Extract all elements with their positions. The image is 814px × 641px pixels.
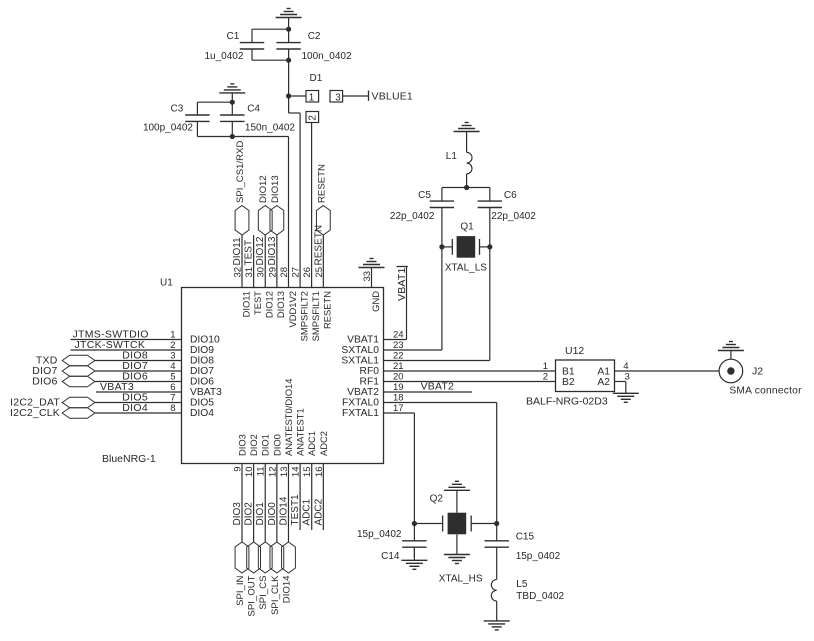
svg-text:2: 2	[170, 340, 175, 351]
svg-text:26: 26	[302, 267, 313, 278]
svg-text:SMA connector: SMA connector	[729, 386, 802, 397]
svg-text:DIO11: DIO11	[240, 291, 251, 317]
svg-text:15p_0402: 15p_0402	[516, 551, 561, 562]
svg-text:21: 21	[393, 361, 404, 372]
svg-text:DIO6: DIO6	[190, 377, 214, 388]
svg-text:DIO11: DIO11	[232, 237, 243, 266]
svg-text:DIO6: DIO6	[32, 375, 57, 387]
svg-text:SXTAL1: SXTAL1	[341, 356, 379, 367]
svg-text:TEST1: TEST1	[290, 494, 301, 526]
svg-text:VBAT2: VBAT2	[421, 380, 454, 392]
svg-text:SMPSFILT1: SMPSFILT1	[310, 291, 321, 341]
svg-text:DIO10: DIO10	[190, 335, 220, 346]
svg-text:ANATEST0/DIO14: ANATEST0/DIO14	[283, 379, 294, 456]
svg-text:VBAT1: VBAT1	[396, 268, 408, 301]
svg-text:Q2: Q2	[430, 494, 444, 505]
svg-text:DIO4: DIO4	[122, 402, 148, 414]
svg-text:D1: D1	[310, 73, 323, 84]
svg-text:4: 4	[170, 361, 175, 372]
svg-text:VDD1V2: VDD1V2	[287, 291, 298, 327]
svg-text:DIO14: DIO14	[278, 496, 289, 525]
svg-text:C1: C1	[227, 31, 240, 42]
svg-text:20: 20	[393, 372, 404, 383]
svg-text:28: 28	[279, 267, 290, 278]
svg-text:DIO0: DIO0	[267, 502, 278, 526]
svg-text:2: 2	[308, 115, 319, 120]
svg-text:C4: C4	[247, 103, 260, 114]
svg-text:27: 27	[291, 267, 302, 278]
svg-text:VBAT3: VBAT3	[190, 387, 222, 398]
svg-text:18: 18	[393, 393, 404, 404]
svg-text:A2: A2	[597, 377, 610, 388]
svg-text:1u_0402: 1u_0402	[204, 51, 243, 62]
svg-text:DIO2: DIO2	[244, 502, 255, 526]
svg-text:DIO14: DIO14	[281, 575, 292, 603]
svg-text:19: 19	[393, 382, 404, 393]
svg-text:SXTAL0: SXTAL0	[341, 345, 379, 356]
svg-text:VBAT1: VBAT1	[347, 335, 379, 346]
svg-text:FXTAL1: FXTAL1	[342, 408, 379, 419]
svg-text:8: 8	[170, 403, 175, 414]
svg-text:3: 3	[625, 372, 630, 383]
svg-text:RF0: RF0	[360, 366, 380, 377]
svg-text:DIO12: DIO12	[264, 291, 275, 318]
svg-text:TEST: TEST	[244, 240, 255, 266]
svg-text:100p_0402: 100p_0402	[143, 123, 193, 134]
svg-text:DIO1: DIO1	[260, 434, 271, 456]
svg-text:A1: A1	[597, 367, 610, 378]
svg-text:VBLUE1: VBLUE1	[372, 90, 413, 102]
svg-text:BlueNRG-1: BlueNRG-1	[102, 453, 156, 465]
svg-text:3: 3	[335, 92, 341, 103]
svg-text:J2: J2	[752, 366, 763, 378]
svg-text:DIO8: DIO8	[190, 356, 214, 367]
svg-text:4: 4	[623, 361, 628, 372]
svg-text:ADC2: ADC2	[313, 498, 324, 525]
svg-text:RESETN: RESETN	[313, 225, 324, 266]
svg-text:RESETN: RESETN	[322, 291, 333, 329]
svg-text:ANATEST1: ANATEST1	[295, 408, 306, 456]
svg-text:DIO13: DIO13	[270, 175, 281, 203]
svg-text:1: 1	[543, 361, 548, 372]
svg-text:VBAT2: VBAT2	[347, 387, 379, 398]
svg-text:L1: L1	[446, 151, 458, 162]
svg-text:U1: U1	[160, 278, 173, 289]
svg-text:5: 5	[170, 372, 175, 383]
svg-text:24: 24	[393, 330, 404, 341]
svg-text:C2: C2	[308, 31, 321, 42]
svg-text:22p_0402: 22p_0402	[491, 211, 536, 222]
svg-text:DIO12: DIO12	[258, 175, 269, 203]
svg-text:C3: C3	[171, 103, 184, 114]
svg-text:FXTAL0: FXTAL0	[342, 398, 379, 409]
svg-text:DIO13: DIO13	[267, 236, 278, 265]
svg-text:DIO4: DIO4	[190, 408, 214, 419]
svg-text:GND: GND	[370, 291, 381, 312]
svg-text:SPI_IN: SPI_IN	[235, 575, 246, 605]
svg-text:L5: L5	[516, 579, 528, 590]
svg-text:DIO7: DIO7	[190, 366, 214, 377]
svg-text:22p_0402: 22p_0402	[390, 211, 435, 222]
svg-text:DIO13: DIO13	[275, 291, 286, 318]
svg-text:C14: C14	[381, 551, 400, 562]
svg-text:RF1: RF1	[360, 377, 380, 388]
svg-text:TEST: TEST	[252, 291, 263, 315]
svg-text:XTAL_LS: XTAL_LS	[445, 263, 487, 274]
svg-text:BALF-NRG-02D3: BALF-NRG-02D3	[526, 396, 608, 408]
svg-text:ADC1: ADC1	[306, 431, 317, 456]
svg-text:23: 23	[393, 340, 404, 351]
svg-text:17: 17	[393, 403, 404, 414]
svg-text:DIO0: DIO0	[271, 434, 282, 456]
svg-text:6: 6	[170, 382, 175, 393]
svg-text:SPI_CS: SPI_CS	[258, 576, 269, 610]
svg-text:22: 22	[393, 351, 404, 362]
svg-text:U12: U12	[565, 345, 584, 357]
svg-text:ADC2: ADC2	[318, 431, 329, 456]
svg-text:I2C2_CLK: I2C2_CLK	[10, 407, 60, 419]
svg-text:XTAL_HS: XTAL_HS	[439, 574, 483, 585]
svg-text:SPI_CS1/RXD: SPI_CS1/RXD	[235, 141, 246, 203]
svg-text:ADC1: ADC1	[302, 498, 313, 525]
svg-text:C5: C5	[418, 190, 431, 201]
svg-text:DIO5: DIO5	[190, 398, 214, 409]
svg-text:15p_0402: 15p_0402	[357, 529, 402, 540]
svg-text:SMPSFILT2: SMPSFILT2	[298, 291, 309, 341]
svg-text:SPI_CLK: SPI_CLK	[270, 575, 281, 615]
svg-text:DIO9: DIO9	[190, 345, 214, 356]
svg-text:SPI_OUT: SPI_OUT	[247, 575, 258, 616]
svg-text:B2: B2	[562, 377, 575, 388]
svg-text:1: 1	[309, 92, 314, 103]
svg-text:RESETN: RESETN	[316, 164, 327, 203]
svg-text:C15: C15	[516, 531, 535, 542]
svg-text:3: 3	[170, 351, 175, 362]
svg-text:C6: C6	[504, 190, 517, 201]
svg-text:DIO2: DIO2	[248, 434, 259, 456]
svg-text:1: 1	[170, 330, 175, 341]
svg-text:DIO3: DIO3	[232, 502, 243, 526]
svg-text:150n_0402: 150n_0402	[245, 123, 295, 134]
svg-text:2: 2	[543, 371, 548, 382]
svg-text:B1: B1	[562, 367, 575, 378]
svg-text:DIO3: DIO3	[237, 434, 248, 456]
svg-text:100n_0402: 100n_0402	[302, 51, 352, 62]
svg-text:DIO12: DIO12	[255, 236, 266, 265]
svg-text:DIO1: DIO1	[255, 502, 266, 526]
svg-text:TBD_0402: TBD_0402	[516, 591, 564, 602]
svg-text:7: 7	[170, 393, 175, 404]
svg-text:Q1: Q1	[460, 222, 474, 233]
